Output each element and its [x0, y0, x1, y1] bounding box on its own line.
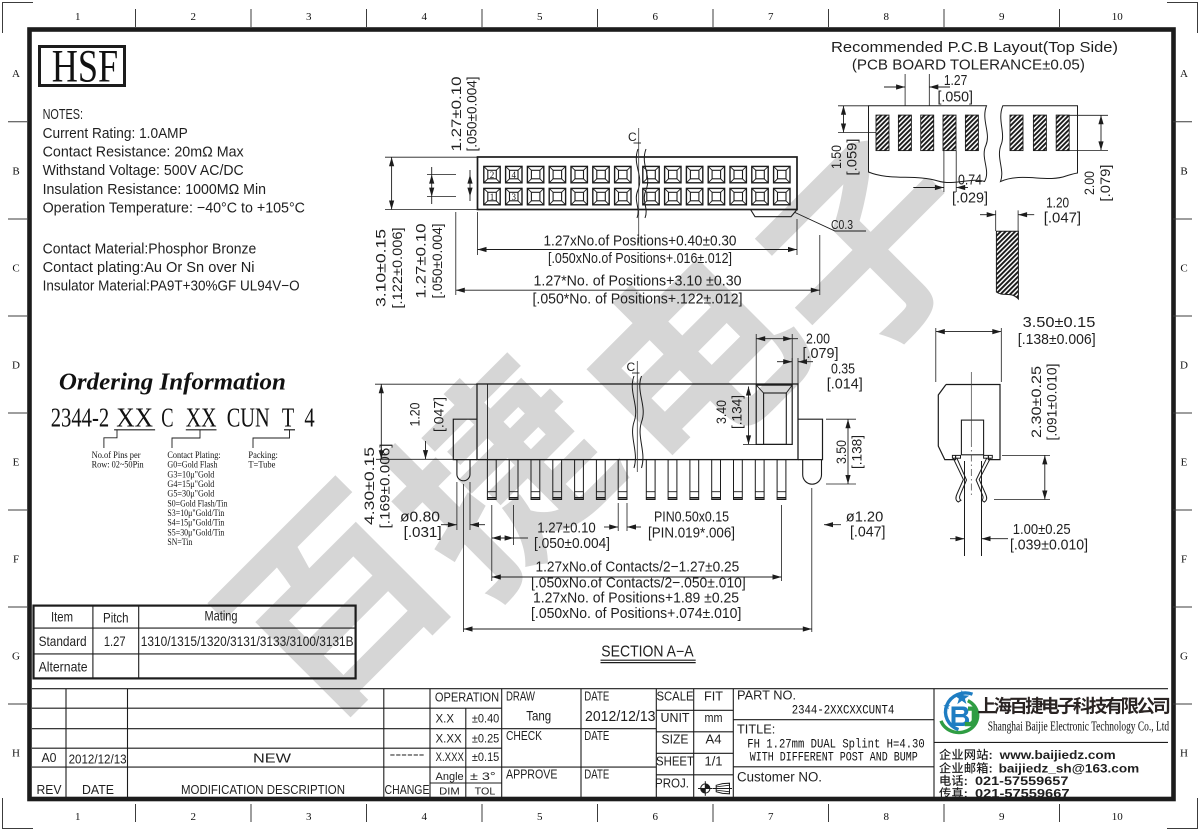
svg-text:Contact Material:Phosphor Br: Contact Material:Phosphor Bronze — [43, 240, 257, 257]
svg-text:3.10±0.15: 3.10±0.15 — [372, 229, 388, 307]
svg-text:Customer NO.: Customer NO. — [737, 770, 822, 785]
svg-text:1.27xNo.of Contacts/2−1.27±0.: 1.27xNo.of Contacts/2−1.27±0.25 — [536, 559, 740, 576]
svg-text:G5=30μ"Gold: G5=30μ"Gold — [167, 490, 214, 500]
svg-text:1.27±0.10: 1.27±0.10 — [448, 76, 464, 151]
svg-text:1/1: 1/1 — [705, 754, 723, 769]
svg-text:OPERATION: OPERATION — [435, 690, 499, 705]
svg-text:Item: Item — [51, 609, 73, 625]
svg-text:9: 9 — [999, 811, 1005, 823]
svg-text:±0.25: ±0.25 — [472, 733, 499, 745]
svg-text:0.74: 0.74 — [958, 172, 982, 189]
svg-text:Insulation Resistance: 1000M: Insulation Resistance: 1000MΩ Min — [43, 181, 266, 198]
svg-text:CHANGE: CHANGE — [385, 782, 430, 797]
svg-text:1.27±0.10: 1.27±0.10 — [413, 223, 429, 298]
svg-text:SIZE: SIZE — [662, 732, 689, 747]
svg-text:UNIT: UNIT — [661, 710, 690, 725]
svg-text:C: C — [627, 360, 636, 374]
svg-text:B: B — [1180, 166, 1187, 178]
svg-text:2344-2XXCXXCUNT4: 2344-2XXCXXCUNT4 — [792, 703, 895, 718]
svg-text:Mating: Mating — [205, 608, 238, 624]
svg-text:C: C — [12, 263, 19, 275]
svg-text:D: D — [1180, 360, 1188, 372]
svg-text:3: 3 — [306, 11, 312, 23]
svg-text:3: 3 — [306, 811, 312, 823]
svg-text:1.27: 1.27 — [104, 633, 126, 649]
svg-text:CUN: CUN — [227, 403, 270, 433]
svg-text:A0: A0 — [42, 750, 57, 765]
svg-text:1.27xNo. of Positions+1.89: 1.27xNo. of Positions+1.89 ±0.25 — [533, 590, 739, 607]
svg-text:A4: A4 — [706, 732, 722, 747]
svg-text:[PIN.019*.006]: [PIN.019*.006] — [648, 525, 735, 542]
svg-text:[.039±0.010]: [.039±0.010] — [1010, 537, 1088, 554]
svg-text:F: F — [13, 554, 19, 566]
svg-text:[.050±0.004]: [.050±0.004] — [534, 535, 610, 552]
svg-text:S4=15μ"Gold/Tin: S4=15μ"Gold/Tin — [167, 519, 224, 529]
svg-text:G: G — [1180, 651, 1188, 663]
svg-text:C0.3: C0.3 — [831, 218, 853, 232]
svg-text:[.047]: [.047] — [1044, 210, 1081, 227]
svg-text:1.27*No. of Positions+3.10: 1.27*No. of Positions+3.10 ±0.30 — [534, 273, 742, 290]
svg-text:[.079]: [.079] — [803, 345, 839, 362]
svg-text:Withstand Voltage: 500V AC/: Withstand Voltage: 500V AC/DC — [43, 162, 244, 179]
svg-text:Alternate: Alternate — [39, 659, 88, 675]
svg-text:S3=10μ"Gold/Tin: S3=10μ"Gold/Tin — [167, 509, 224, 519]
svg-text:Recommended P.C.B Layout(Top: Recommended P.C.B Layout(Top Side) — [831, 39, 1118, 56]
svg-text:APPROVE: APPROVE — [506, 767, 558, 782]
svg-text:DATE: DATE — [584, 689, 609, 704]
svg-text:E: E — [1181, 457, 1188, 469]
svg-text:4: 4 — [304, 403, 315, 433]
svg-text:1.20: 1.20 — [406, 402, 422, 426]
svg-text:4: 4 — [422, 811, 428, 823]
svg-text:Shanghai Baijie Electronic Tec: Shanghai Baijie Electronic Technology Co… — [988, 719, 1170, 734]
svg-text:PROJ.: PROJ. — [655, 776, 689, 791]
svg-text:2.30±0.25: 2.30±0.25 — [1028, 366, 1044, 438]
svg-text:±0.40: ±0.40 — [472, 714, 499, 726]
svg-text:(PCB BOARD TOLERANCE±0.05): (PCB BOARD TOLERANCE±0.05) — [852, 57, 1085, 74]
svg-text:1.00±0.25: 1.00±0.25 — [1013, 521, 1071, 538]
svg-text:Pitch: Pitch — [103, 609, 129, 625]
svg-text:[.050±0.004]: [.050±0.004] — [464, 77, 480, 152]
svg-text:[.122±0.006]: [.122±0.006] — [389, 228, 405, 309]
svg-text:5: 5 — [537, 811, 543, 823]
svg-text:10: 10 — [1112, 11, 1124, 23]
svg-text:Contact Resistance: 20mΩ Ma: Contact Resistance: 20mΩ Max — [43, 143, 245, 160]
svg-text:[.014]: [.014] — [827, 376, 863, 393]
svg-text:WITH DIFFERENT POST AND BUMP: WITH DIFFERENT POST AND BUMP — [750, 750, 918, 765]
svg-text:[.059]: [.059] — [844, 139, 860, 176]
svg-text:T=Tube: T=Tube — [248, 460, 275, 470]
svg-text:B: B — [12, 166, 19, 178]
svg-text:SCALE: SCALE — [657, 689, 694, 704]
svg-text:S0=Gold Flash/Tin: S0=Gold Flash/Tin — [167, 499, 227, 509]
svg-text:PIN0.50x0.15: PIN0.50x0.15 — [654, 509, 729, 526]
svg-text:Angle: Angle — [436, 771, 464, 783]
svg-text:[.047]: [.047] — [850, 524, 885, 541]
svg-text:SN=Tin: SN=Tin — [167, 538, 192, 548]
svg-text:6: 6 — [653, 811, 659, 823]
svg-text::: : — [964, 787, 968, 801]
svg-text:[.138±0.006]: [.138±0.006] — [1018, 331, 1096, 348]
svg-text:XX: XX — [116, 403, 153, 433]
svg-text:A: A — [1180, 68, 1188, 80]
svg-text:CHECK: CHECK — [506, 728, 542, 743]
svg-text:A: A — [12, 68, 20, 80]
svg-text:021-57559667: 021-57559667 — [975, 787, 1070, 801]
svg-text:6: 6 — [653, 11, 659, 23]
svg-text:E: E — [13, 457, 20, 469]
svg-text:H: H — [1180, 748, 1188, 760]
svg-text:ø0.80: ø0.80 — [400, 509, 440, 526]
svg-text:D: D — [12, 360, 20, 372]
svg-text:7: 7 — [768, 11, 774, 23]
svg-text:NEW: NEW — [253, 751, 292, 766]
svg-text:DRAW: DRAW — [506, 689, 536, 704]
svg-text:[.091±0.010]: [.091±0.010] — [1044, 364, 1060, 441]
svg-text:FIT: FIT — [704, 689, 723, 704]
svg-text:X.XX: X.XX — [436, 733, 463, 745]
svg-text:2: 2 — [191, 811, 197, 823]
svg-text:[.050±0.004]: [.050±0.004] — [429, 224, 445, 299]
svg-text:DATE: DATE — [584, 728, 609, 743]
svg-text:X.XXX: X.XXX — [436, 752, 465, 764]
svg-text:[.050xNo.of Positions+.016±.0: [.050xNo.of Positions+.016±.012] — [548, 250, 732, 267]
svg-text:10: 10 — [1112, 811, 1124, 823]
svg-text:XX: XX — [186, 403, 217, 433]
svg-text:8: 8 — [884, 11, 890, 23]
svg-text:Tang: Tang — [526, 708, 551, 724]
svg-text:1: 1 — [75, 811, 81, 823]
svg-text:[.050xNo. of Positions+.074±: [.050xNo. of Positions+.074±.010] — [531, 605, 741, 622]
svg-text:2: 2 — [191, 11, 197, 23]
svg-text:------: ------ — [390, 747, 425, 762]
svg-text:3.50: 3.50 — [833, 440, 849, 464]
svg-text:S5=30μ"Gold/Tin: S5=30μ"Gold/Tin — [167, 528, 224, 538]
svg-text:SECTION A−A: SECTION A−A — [601, 644, 694, 661]
svg-text:TOL: TOL — [475, 786, 496, 798]
svg-text:[.031]: [.031] — [404, 524, 442, 541]
svg-text:G: G — [12, 651, 20, 663]
svg-text:Operation Temperature: −40°C: Operation Temperature: −40°C to +105°C — [43, 200, 306, 217]
svg-text:G3=10μ"Gold: G3=10μ"Gold — [167, 470, 214, 480]
svg-text:REV: REV — [37, 782, 62, 797]
svg-text:mm: mm — [705, 710, 723, 725]
svg-text:[.029]: [.029] — [952, 190, 988, 207]
svg-text:2.00: 2.00 — [1081, 171, 1097, 195]
svg-text:C: C — [628, 130, 637, 144]
svg-text:1310/1315/1320/3131/3133/3100/: 1310/1315/1320/3131/3133/3100/3131B — [141, 633, 354, 649]
svg-text:[.050*No. of Positions+.122±: [.050*No. of Positions+.122±.012] — [533, 291, 743, 308]
svg-text:1.27xNo.of Positions+0.40±0.3: 1.27xNo.of Positions+0.40±0.30 — [544, 233, 737, 250]
svg-text:DATE: DATE — [82, 782, 114, 797]
svg-text:±0.15: ±0.15 — [472, 752, 499, 764]
svg-text:4: 4 — [422, 11, 428, 23]
svg-text:G4=15μ"Gold: G4=15μ"Gold — [167, 480, 214, 490]
svg-text:SHEET: SHEET — [656, 754, 694, 769]
svg-text:C: C — [1180, 263, 1187, 275]
svg-text:Current Rating: 1.0AMP: Current Rating: 1.0AMP — [43, 125, 188, 142]
svg-text::: : — [989, 748, 993, 762]
svg-text:± 3°: ± 3° — [470, 771, 496, 783]
svg-text:HSF: HSF — [52, 41, 118, 93]
svg-text:PART NO.: PART NO. — [737, 688, 796, 703]
svg-text:Ordering Information: Ordering Information — [59, 370, 286, 396]
svg-text:H: H — [12, 748, 20, 760]
svg-text:1.27: 1.27 — [944, 72, 968, 89]
svg-text:G0=Gold Flash: G0=Gold Flash — [167, 461, 217, 471]
svg-text:4.30±0.15: 4.30±0.15 — [361, 447, 377, 525]
svg-text:TITLE:: TITLE: — [737, 722, 775, 737]
svg-text:3.40: 3.40 — [713, 400, 729, 424]
svg-text:Contact Plating:: Contact Plating: — [167, 451, 220, 461]
svg-text:[.050]: [.050] — [937, 89, 973, 106]
svg-text:DIM: DIM — [439, 786, 460, 798]
svg-text:Insulator Material:PA9T+30%GF: Insulator Material:PA9T+30%GF UL94V−O — [43, 278, 300, 295]
svg-text:5: 5 — [537, 11, 543, 23]
svg-text:1.50: 1.50 — [828, 145, 844, 169]
svg-text:MODIFICATION DESCRIPTION: MODIFICATION DESCRIPTION — [181, 782, 345, 797]
svg-text:2344-2: 2344-2 — [51, 403, 109, 433]
svg-text:Standard: Standard — [39, 633, 87, 649]
svg-text:[.134]: [.134] — [729, 395, 745, 429]
svg-text:T: T — [282, 403, 295, 433]
svg-text:3.50±0.15: 3.50±0.15 — [1023, 314, 1096, 331]
svg-text:[.138]: [.138] — [849, 435, 865, 469]
svg-text:2: 2 — [490, 170, 495, 180]
svg-text:9: 9 — [999, 11, 1005, 23]
svg-text:[.079]: [.079] — [1097, 165, 1113, 202]
svg-text:Contact plating:Au Or Sn o: Contact plating:Au Or Sn over Ni — [43, 259, 255, 276]
svg-text:F: F — [1181, 554, 1187, 566]
svg-text:DATE: DATE — [584, 767, 609, 782]
svg-text:Row: 02~50Pin: Row: 02~50Pin — [92, 460, 144, 470]
svg-text:1.27±0.10: 1.27±0.10 — [537, 520, 596, 537]
svg-text:NOTES:: NOTES: — [43, 106, 83, 123]
svg-text:2012/12/13: 2012/12/13 — [69, 752, 127, 767]
svg-text:4: 4 — [512, 170, 517, 180]
svg-text:1: 1 — [75, 11, 81, 23]
svg-text:[.047]: [.047] — [430, 397, 446, 432]
svg-text:www.baijiedz.com: www.baijiedz.com — [999, 748, 1116, 762]
svg-text:2012/12/13: 2012/12/13 — [585, 709, 656, 725]
svg-text:C: C — [161, 403, 173, 433]
svg-text:1: 1 — [490, 192, 495, 202]
svg-text:7: 7 — [768, 811, 774, 823]
svg-text:[.169±0.006]: [.169±0.006] — [377, 444, 393, 529]
svg-text:X.X: X.X — [436, 714, 455, 726]
svg-text:3: 3 — [512, 192, 517, 202]
svg-text:8: 8 — [884, 811, 890, 823]
